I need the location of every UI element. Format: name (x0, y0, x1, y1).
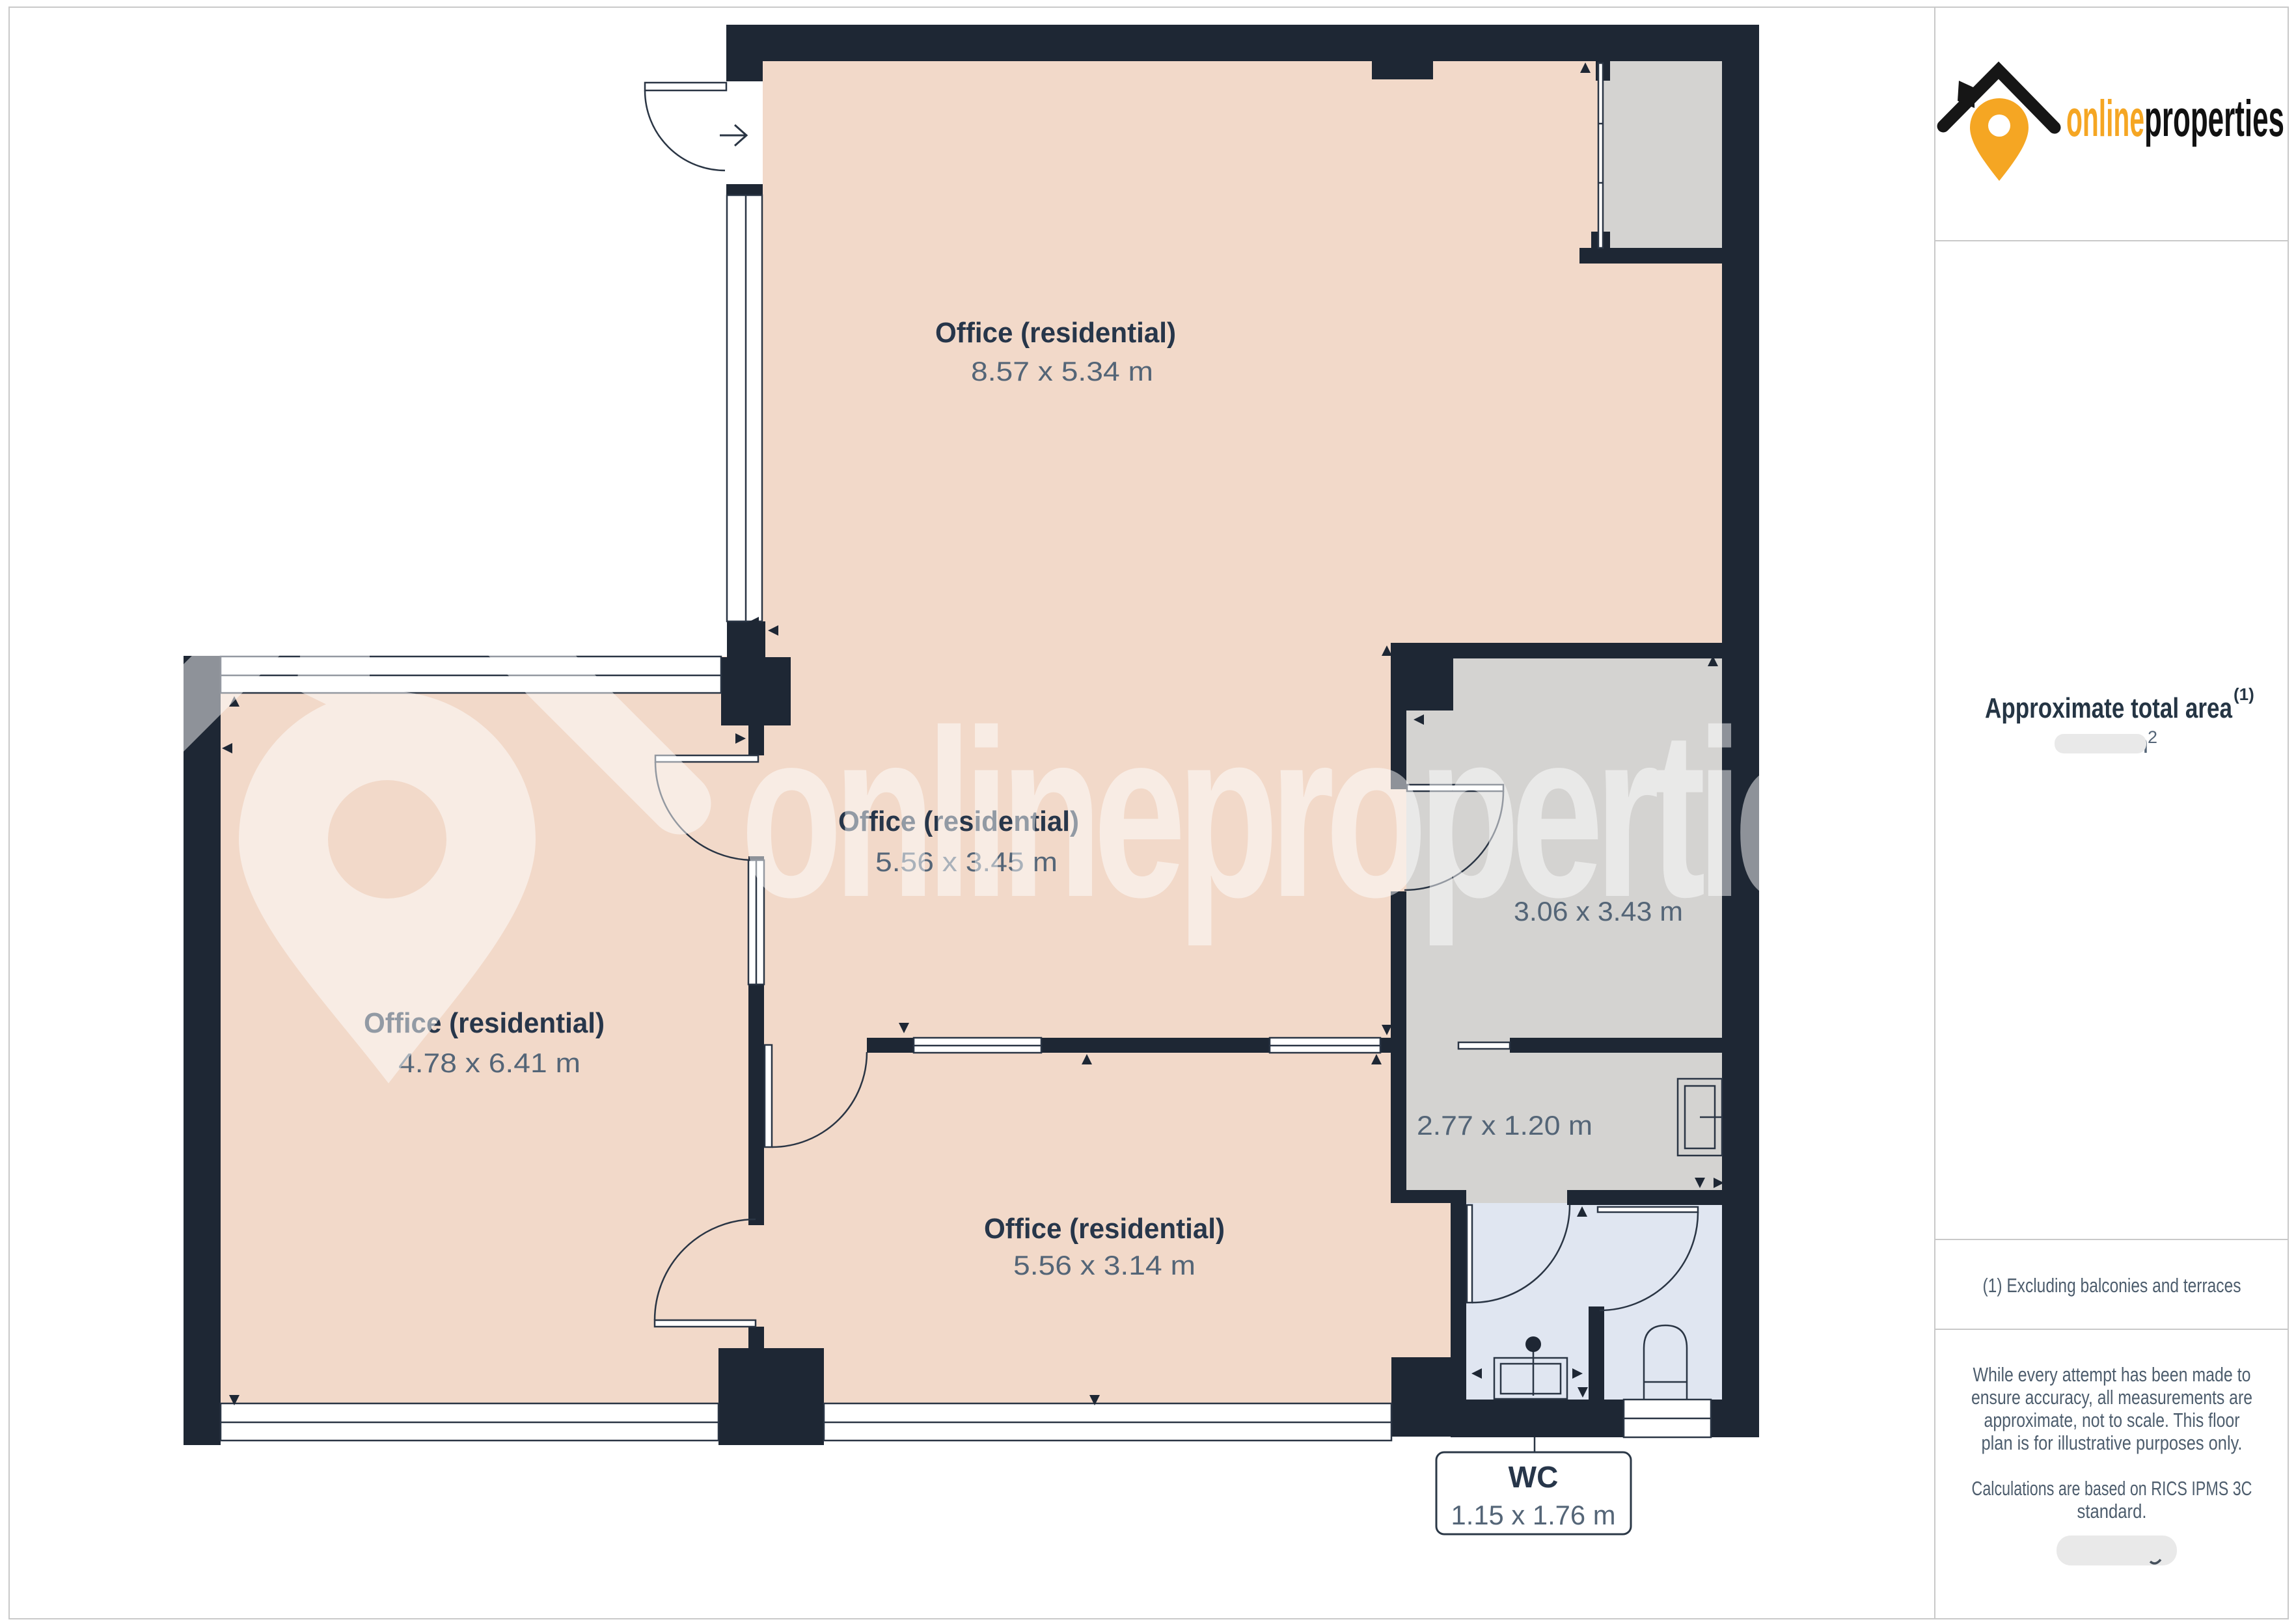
svg-text:Office (residential): Office (residential) (984, 1213, 1225, 1245)
svg-text:Calculations are based on RICS: Calculations are based on RICS IPMS 3C (1972, 1477, 2252, 1500)
svg-text:2: 2 (2148, 727, 2157, 747)
svg-text:approximate, not to scale. Thi: approximate, not to scale. This floor (1984, 1409, 2240, 1431)
svg-text:Approximate total area: Approximate total area (1985, 692, 2232, 724)
svg-text:properties: properties (2144, 89, 2284, 147)
svg-text:While every attempt has been m: While every attempt has been made to (1973, 1363, 2251, 1386)
svg-text:(1): (1) (2234, 684, 2254, 704)
svg-text:standard.: standard. (2077, 1500, 2147, 1522)
svg-text:WC: WC (1509, 1460, 1559, 1494)
svg-text:online: online (2066, 89, 2144, 147)
svg-text:(1) Excluding balconies and te: (1) Excluding balconies and terraces (1983, 1274, 2241, 1297)
svg-text:ensure accuracy, all measureme: ensure accuracy, all measurements are (1971, 1386, 2252, 1409)
svg-text:plan is for illustrative purpo: plan is for illustrative purposes only. (1982, 1431, 2243, 1454)
svg-text:5.56 x 3.14 m: 5.56 x 3.14 m (1013, 1250, 1196, 1280)
svg-text:8.57 x 5.34 m: 8.57 x 5.34 m (971, 356, 1153, 386)
svg-text:4.78 x 6.41 m: 4.78 x 6.41 m (398, 1048, 581, 1078)
svg-text:1.15 x 1.76 m: 1.15 x 1.76 m (1451, 1500, 1616, 1530)
svg-text:Office (residential): Office (residential) (935, 317, 1176, 349)
svg-text:2.77 x 1.20 m: 2.77 x 1.20 m (1417, 1110, 1592, 1141)
svg-text:onlineproperties: onlineproperties (741, 681, 1904, 948)
